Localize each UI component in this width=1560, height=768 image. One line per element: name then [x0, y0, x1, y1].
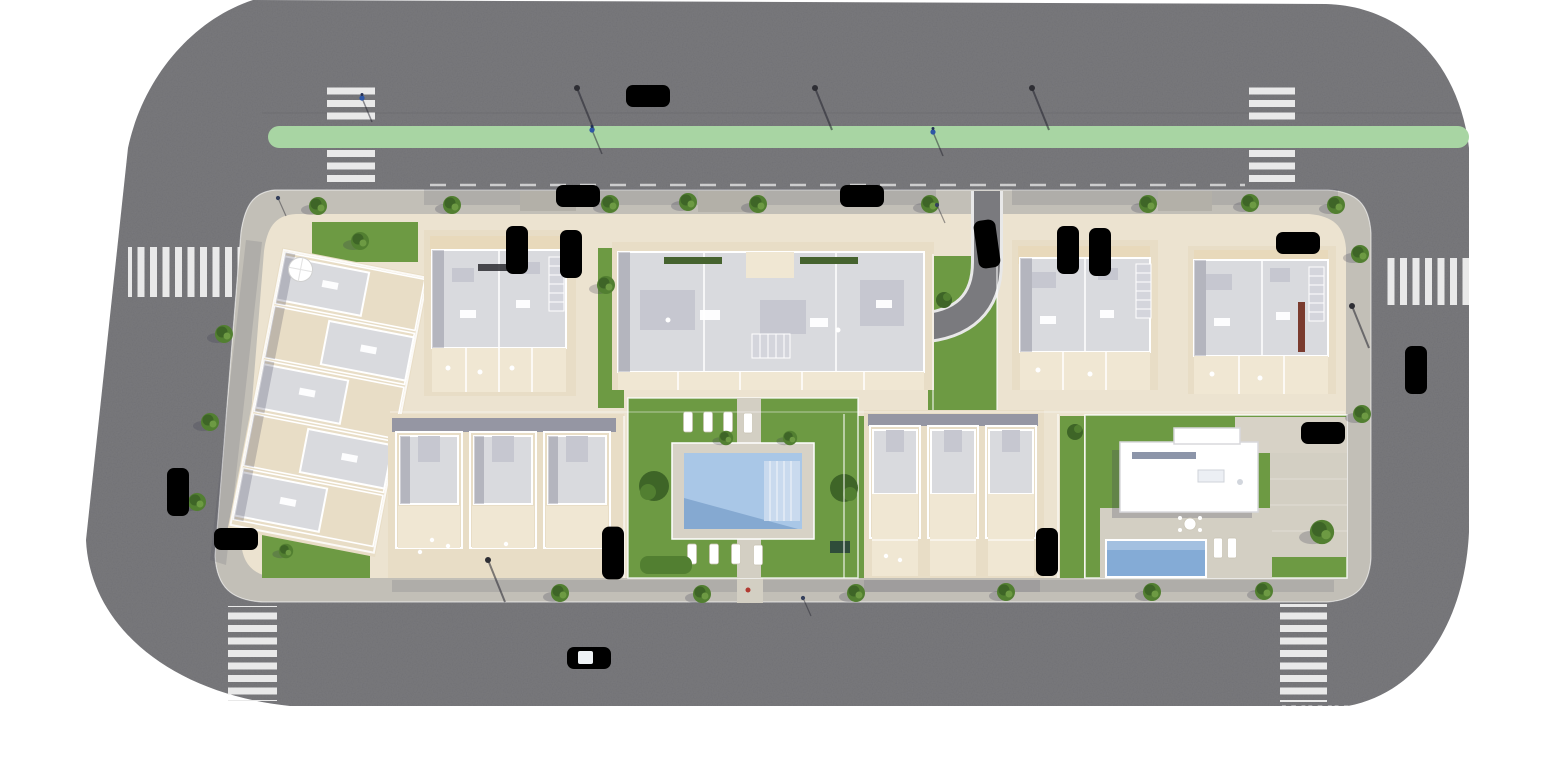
- van-parked: [602, 527, 624, 580]
- building-townhouse-sw: [388, 414, 624, 578]
- crosswalk-west: [128, 247, 240, 297]
- lawn-strip: [1060, 416, 1084, 578]
- car-parked: [840, 185, 884, 207]
- communal-pool-garden: [628, 398, 858, 593]
- sun-lounger: [704, 412, 713, 432]
- crosswalk-bottom-right: [1280, 604, 1327, 702]
- staircase: [1136, 264, 1151, 318]
- chimney: [1298, 302, 1305, 352]
- building-apartment-central: [612, 242, 934, 390]
- crosswalk-east: [1382, 258, 1469, 305]
- car-parked: [167, 468, 189, 516]
- building-apartment-ne1: [1012, 240, 1158, 390]
- building-apartment-ne2: [1188, 246, 1336, 394]
- car-parked: [560, 230, 582, 278]
- site-plan-canvas: www: [0, 0, 1560, 768]
- pool-steps: [764, 461, 800, 521]
- car-parked: [1057, 226, 1079, 274]
- car-roof: [578, 651, 593, 664]
- entrance-pad: [1158, 191, 1212, 211]
- staircase: [1309, 267, 1324, 321]
- car-parked: [214, 528, 258, 550]
- car-driving: [1405, 346, 1427, 394]
- building-apartment-nw: [424, 230, 576, 396]
- skylight: [1132, 452, 1196, 459]
- sun-lounger: [724, 412, 733, 432]
- car-parked: [506, 226, 528, 274]
- sun-lounger: [710, 544, 719, 564]
- car-parked: [1276, 232, 1320, 254]
- car-parked: [1089, 228, 1111, 276]
- pedestrian: [746, 588, 751, 593]
- sun-lounger: [732, 544, 741, 564]
- car-driving: [626, 85, 670, 107]
- sun-lounger: [754, 545, 763, 565]
- sun-lounger: [1228, 538, 1237, 558]
- car-parked: [1301, 422, 1345, 444]
- bush: [936, 292, 952, 308]
- building-townhouse-s: [864, 410, 1044, 578]
- bush: [1067, 424, 1083, 440]
- site-plan-render: www: [0, 0, 1560, 768]
- bike-lane: [268, 126, 1469, 148]
- equipment-box: [830, 541, 850, 553]
- sun-lounger: [744, 413, 753, 433]
- staircase: [752, 334, 790, 358]
- sun-lounger: [1214, 538, 1223, 558]
- sun-lounger: [684, 412, 693, 432]
- car-parked: [556, 185, 600, 207]
- car-parked: [1036, 528, 1058, 576]
- crosswalk-bottom-left: [228, 606, 277, 701]
